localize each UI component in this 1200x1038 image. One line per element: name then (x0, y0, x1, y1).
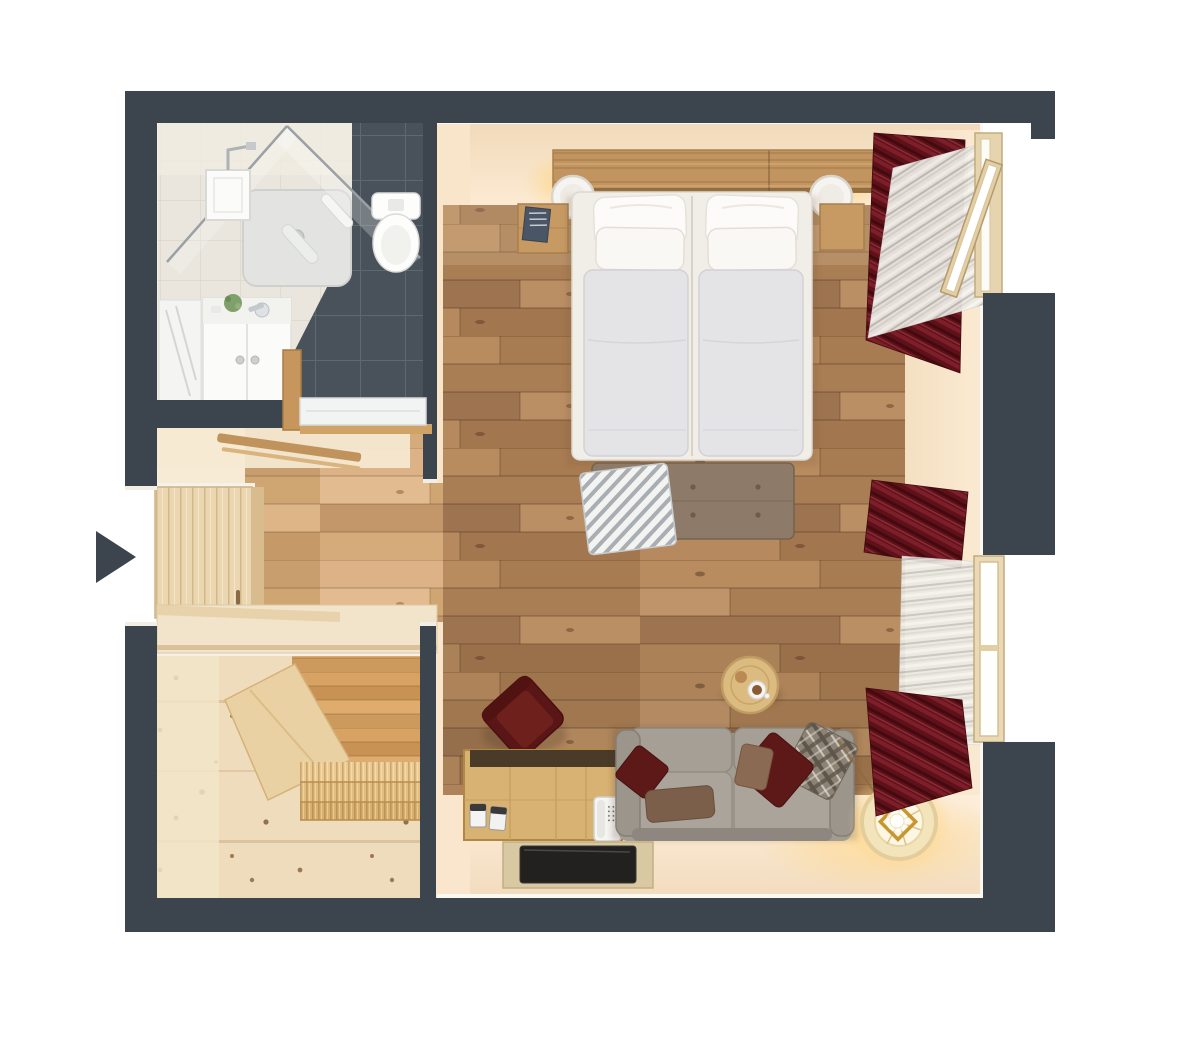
entry-arrow (96, 531, 136, 583)
wall-end-cap (125, 622, 157, 626)
nightstand-right (820, 204, 864, 250)
wall-top (125, 91, 1055, 123)
lumbar-cushion (645, 785, 716, 823)
flat-panel (503, 842, 653, 888)
coat-shelf (157, 428, 410, 470)
wall-right-bottom (983, 742, 1055, 898)
window-mid-rail (980, 645, 998, 651)
toilet (372, 193, 420, 272)
storage-chest (464, 750, 622, 841)
mirror (159, 300, 201, 406)
chest-opening (470, 750, 616, 767)
wall-end-cap (420, 622, 436, 626)
entry-door (155, 483, 264, 618)
handset (597, 800, 605, 838)
plaster-edge-bottom (437, 894, 983, 898)
wall-right-top-stub (1031, 123, 1055, 139)
vanity-sink (159, 294, 291, 410)
door-handle (236, 590, 240, 605)
wall-divider-sauna (420, 622, 436, 898)
hall-bench (157, 605, 437, 653)
sofa-front-lip (632, 828, 832, 841)
bathroom-door-post (283, 350, 301, 430)
floor-plan-stage: Top-down 3D floor plan render: studio ap… (0, 0, 1200, 1038)
snack-bowl (735, 671, 747, 683)
floor-plan-render: Top-down 3D floor plan render: studio ap… (0, 0, 1200, 1038)
wall-left-upper (125, 91, 157, 490)
window-closed (974, 556, 1004, 742)
lamp-bulb (890, 814, 904, 828)
striped-throw (579, 463, 676, 555)
sofa (612, 720, 859, 841)
curtain-maroon-middle (864, 480, 968, 568)
wall-left-lower (125, 622, 157, 932)
wall-end-cap (125, 486, 157, 490)
wall-right-pillar (983, 293, 1055, 555)
wall-end-cap (423, 479, 437, 483)
step-platforms (300, 762, 420, 820)
sauna-wall-strip (157, 656, 219, 898)
wall-bottom (125, 898, 1055, 932)
nightstand-left (518, 204, 568, 253)
